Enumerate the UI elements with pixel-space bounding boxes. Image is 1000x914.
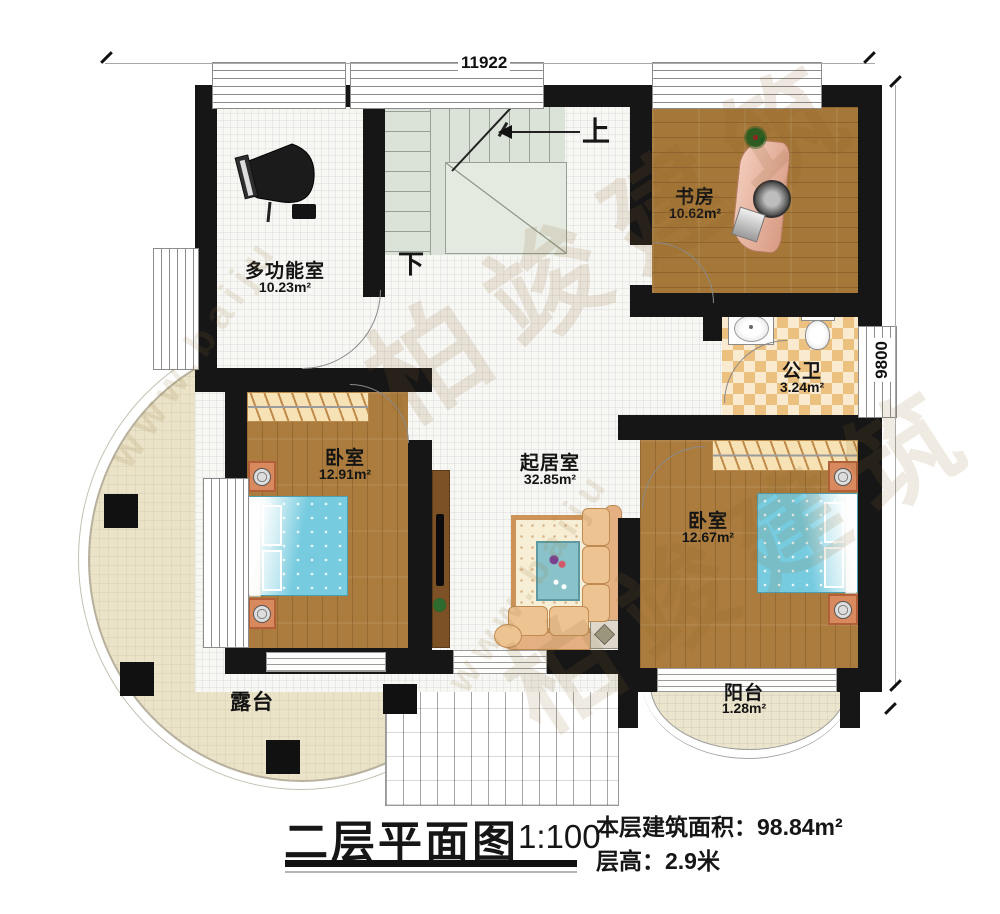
room-name-terrace: 露台 bbox=[212, 686, 292, 716]
room-area-study: 10.62m² bbox=[650, 205, 740, 221]
terrace-pillar bbox=[120, 662, 154, 696]
side-table bbox=[590, 620, 619, 649]
window-top-study bbox=[652, 62, 822, 109]
side-table-inlay bbox=[594, 624, 615, 645]
stats-area-label: 本层建筑面积： bbox=[596, 814, 757, 840]
wall-multi-right bbox=[363, 85, 385, 297]
room-area-bedroom-right: 12.67m² bbox=[665, 529, 751, 545]
stair-landing bbox=[445, 162, 567, 254]
grand-piano bbox=[230, 138, 326, 242]
slider-living-roof bbox=[453, 650, 547, 674]
stair-pointer-line bbox=[508, 131, 580, 133]
bedroom-left-nightstand-top bbox=[248, 461, 276, 492]
sink-drain bbox=[749, 325, 753, 329]
bedroom-left-nightstand-bottom bbox=[248, 598, 276, 629]
bedroom-right-nightstand-top bbox=[828, 461, 858, 492]
stats-area-row: 本层建筑面积：98.84m² bbox=[596, 808, 843, 842]
coffee-table bbox=[536, 541, 580, 601]
stair-down-label: 下 bbox=[398, 244, 424, 281]
wall-study-left bbox=[630, 85, 652, 245]
room-area-bath: 3.24m² bbox=[764, 379, 840, 395]
window-left-bedroom bbox=[203, 478, 249, 648]
window-left-multi bbox=[153, 248, 199, 370]
terrace-pillar bbox=[266, 740, 300, 774]
window-top-multi bbox=[212, 62, 346, 109]
stats-height-row: 层高：2.9米 bbox=[596, 842, 720, 876]
slider-bedroom-left-terrace bbox=[266, 652, 386, 672]
stair-up-label: 上 bbox=[582, 110, 610, 150]
toilet-bowl bbox=[805, 320, 830, 350]
stats-height-label: 层高： bbox=[596, 848, 665, 874]
bedroom-right-bed bbox=[757, 493, 858, 593]
stair-treads-down bbox=[385, 92, 431, 255]
bed-duvet bbox=[249, 497, 347, 595]
dimension-right-value: 9800 bbox=[872, 338, 892, 382]
terrace-pillar bbox=[104, 494, 138, 528]
room-area-multi: 10.23m² bbox=[222, 279, 348, 295]
wall-bedroom-left-right bbox=[408, 440, 432, 654]
room-area-living: 32.85m² bbox=[507, 471, 593, 487]
bed-duvet bbox=[758, 494, 857, 592]
sofa-cushion bbox=[549, 606, 589, 636]
title-underline-thick bbox=[285, 860, 577, 867]
wall-bedroom-right-left bbox=[618, 518, 640, 692]
bedroom-left-bed bbox=[248, 496, 348, 596]
dimension-line-right bbox=[895, 85, 896, 688]
wall-multi-bottom bbox=[195, 368, 432, 392]
room-area-balcony: 1.28m² bbox=[706, 700, 782, 716]
sofa-cushion bbox=[582, 508, 610, 546]
terrace-pillar bbox=[383, 684, 417, 714]
balcony-pier-right bbox=[840, 692, 860, 728]
balcony-pier-left bbox=[618, 692, 638, 728]
title-underline-thin bbox=[285, 871, 577, 873]
dimension-tick bbox=[100, 51, 113, 64]
plan-scale: 1:100 bbox=[518, 818, 601, 856]
floor-plan-canvas: 上 下 bbox=[0, 0, 1000, 914]
dimension-tick bbox=[863, 51, 876, 64]
stats-area-value: 98.84m² bbox=[757, 814, 843, 840]
dimension-tick bbox=[884, 702, 897, 715]
cabinet-plant bbox=[433, 598, 446, 612]
dimension-top-value: 11922 bbox=[458, 53, 510, 73]
wall-bedroom-right-top bbox=[618, 415, 880, 440]
bedroom-right-nightstand-bottom bbox=[828, 594, 858, 625]
stair-pointer-arrow bbox=[498, 125, 512, 139]
window-top-stairs bbox=[350, 62, 544, 109]
room-area-bedroom-left: 12.91m² bbox=[302, 466, 388, 482]
sofa-armrest bbox=[494, 624, 522, 648]
study-plant bbox=[746, 128, 765, 147]
stats-height-value: 2.9米 bbox=[665, 848, 720, 874]
wall-bath-left-stub bbox=[703, 317, 722, 341]
tv-screen bbox=[436, 514, 444, 586]
roof-hatch bbox=[385, 678, 619, 806]
sofa-cushion bbox=[582, 546, 610, 584]
